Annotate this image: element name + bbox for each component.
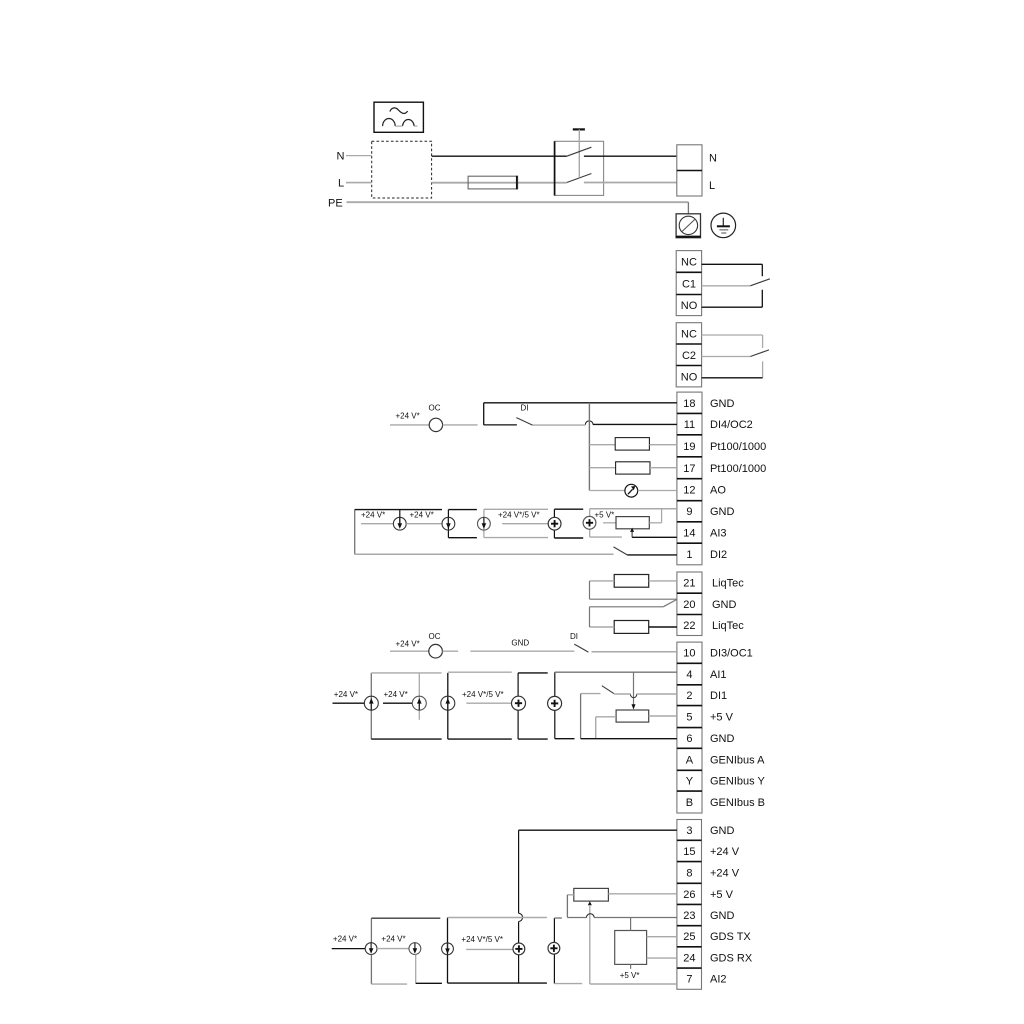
svg-text:21: 21 [683,578,695,590]
svg-text:GND: GND [710,506,735,518]
svg-text:GND: GND [712,599,737,611]
svg-text:18: 18 [683,398,695,410]
svg-text:+24 V*: +24 V* [361,510,385,519]
svg-text:23: 23 [683,910,695,922]
svg-text:+24 V*: +24 V* [381,935,405,944]
svg-text:DI4/OC2: DI4/OC2 [710,419,753,431]
svg-text:GND: GND [710,910,735,922]
svg-text:NO: NO [681,371,698,383]
svg-text:1: 1 [686,549,692,561]
svg-text:+24 V*: +24 V* [333,935,357,944]
svg-text:NO: NO [681,300,698,312]
svg-text:GND: GND [710,825,735,837]
svg-text:24: 24 [683,953,695,965]
svg-text:+24 V*/5 V*: +24 V*/5 V* [498,510,540,519]
svg-text:N: N [337,151,345,163]
svg-text:Pt100/1000: Pt100/1000 [710,463,766,475]
svg-text:GENIbus Y: GENIbus Y [710,776,765,788]
svg-text:+24 V*/5 V*: +24 V*/5 V* [462,690,504,699]
svg-text:2: 2 [686,690,692,702]
svg-text:L: L [709,180,715,192]
svg-text:+24 V: +24 V [710,846,740,858]
svg-text:+5 V*: +5 V* [620,971,640,980]
svg-text:+24 V*: +24 V* [384,690,408,699]
svg-text:14: 14 [683,528,695,540]
svg-text:GND: GND [511,639,529,648]
svg-text:Pt100/1000: Pt100/1000 [710,441,766,453]
svg-text:DI3/OC1: DI3/OC1 [710,648,753,660]
svg-text:N: N [709,153,717,165]
svg-text:8: 8 [686,868,692,880]
svg-text:C2: C2 [682,350,696,362]
svg-text:DI2: DI2 [710,549,727,561]
svg-text:4: 4 [686,669,692,681]
svg-text:GDS TX: GDS TX [710,931,751,943]
svg-text:11: 11 [684,419,695,431]
svg-text:12: 12 [683,485,695,497]
svg-text:17: 17 [683,463,695,475]
svg-text:7: 7 [686,974,692,986]
svg-text:26: 26 [683,889,695,901]
svg-text:AI1: AI1 [710,669,727,681]
svg-text:10: 10 [683,648,695,660]
svg-text:+5 V: +5 V [710,712,734,724]
svg-text:+24 V*/5 V*: +24 V*/5 V* [461,935,503,944]
svg-text:B: B [686,797,693,809]
svg-text:15: 15 [683,846,695,858]
svg-text:6: 6 [686,733,692,745]
svg-text:+5 V: +5 V [710,889,734,901]
svg-text:+24 V*: +24 V* [410,510,434,519]
svg-text:AI3: AI3 [710,528,727,540]
svg-text:AI2: AI2 [710,974,727,986]
svg-text:DI1: DI1 [710,690,727,702]
svg-text:LiqTec: LiqTec [712,578,744,590]
svg-text:+24 V*: +24 V* [396,412,420,421]
svg-text:DI: DI [570,632,578,641]
svg-text:Y: Y [686,776,694,788]
svg-text:+24 V*: +24 V* [396,640,420,649]
svg-text:A: A [686,754,694,766]
svg-text:3: 3 [686,825,692,837]
svg-text:OC: OC [429,404,441,413]
svg-text:GND: GND [710,398,735,410]
svg-text:9: 9 [686,506,692,518]
svg-text:+24 V*: +24 V* [334,690,358,699]
svg-text:25: 25 [683,931,695,943]
svg-text:C1: C1 [682,278,696,290]
svg-text:GENIbus B: GENIbus B [710,797,765,809]
svg-text:5: 5 [686,712,692,724]
svg-text:NC: NC [681,257,697,269]
svg-text:GDS RX: GDS RX [710,953,753,965]
svg-text:22: 22 [683,620,695,632]
svg-text:DI: DI [521,404,529,413]
svg-text:LiqTec: LiqTec [712,620,744,632]
svg-text:AO: AO [710,485,726,497]
svg-text:PE: PE [328,198,343,210]
svg-text:GENIbus A: GENIbus A [710,754,765,766]
svg-text:NC: NC [681,328,697,340]
svg-text:L: L [338,178,344,190]
svg-text:OC: OC [429,632,441,641]
svg-text:GND: GND [710,733,735,745]
svg-text:20: 20 [683,599,695,611]
svg-text:+24 V: +24 V [710,868,740,880]
svg-text:+5 V*: +5 V* [595,510,615,519]
svg-text:19: 19 [683,441,695,453]
